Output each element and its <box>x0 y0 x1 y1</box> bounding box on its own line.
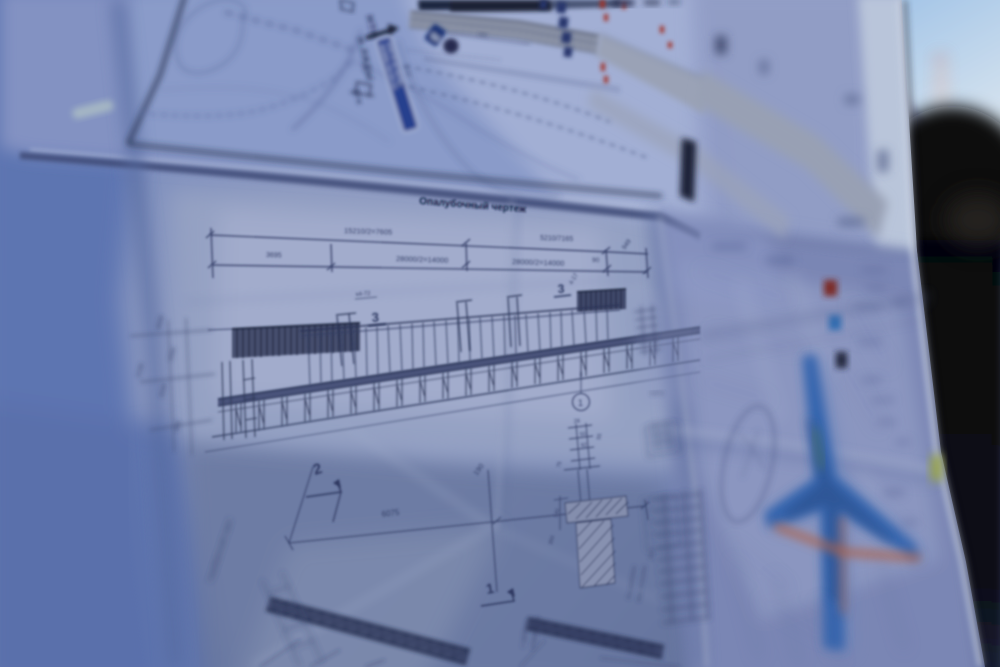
svg-text:400: 400 <box>478 32 488 39</box>
svg-text:5210/7165: 5210/7165 <box>540 235 573 243</box>
svg-text:3: 3 <box>557 282 565 296</box>
svg-text:50: 50 <box>580 431 587 438</box>
svg-text:92: 92 <box>581 442 588 449</box>
svg-text:3: 3 <box>371 310 379 325</box>
svg-text:1: 1 <box>578 398 583 408</box>
svg-text:П7Г2: П7Г2 <box>650 391 665 398</box>
svg-text:90: 90 <box>592 257 600 264</box>
svg-text:к4-72: к4-72 <box>356 291 372 298</box>
svg-text:28000/2=14000: 28000/2=14000 <box>512 257 565 268</box>
svg-text:3695: 3695 <box>266 252 282 260</box>
svg-text:28: 28 <box>574 418 581 425</box>
svg-text:15210/2=7605: 15210/2=7605 <box>344 226 392 237</box>
svg-text:28000/2=14000: 28000/2=14000 <box>396 254 449 265</box>
